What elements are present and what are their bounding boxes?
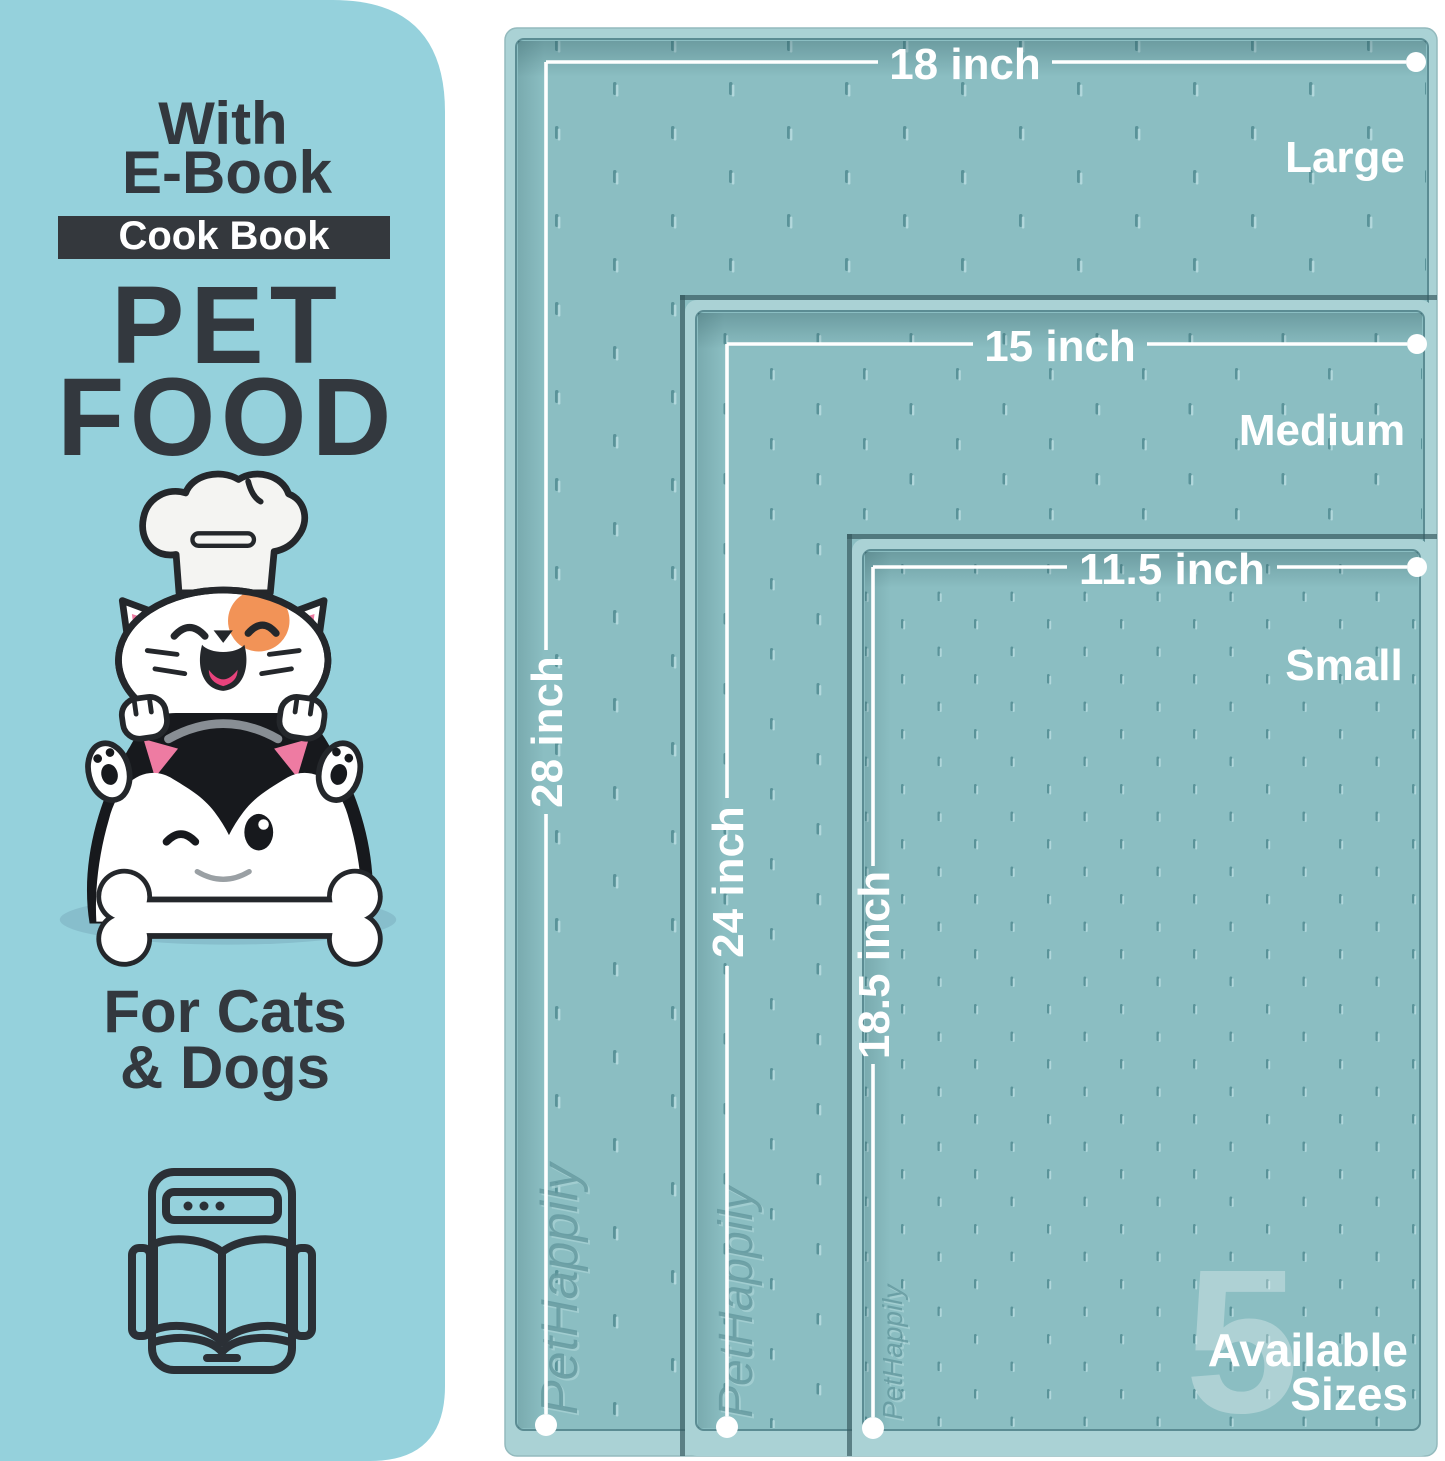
svg-text:PetHappily: PetHappily bbox=[531, 1161, 589, 1415]
svg-text:FOOD: FOOD bbox=[57, 356, 397, 479]
svg-text:Small: Small bbox=[1285, 641, 1402, 690]
svg-text:PetHappily: PetHappily bbox=[710, 1183, 763, 1418]
svg-text:Medium: Medium bbox=[1239, 406, 1405, 455]
svg-text:18 inch: 18 inch bbox=[889, 40, 1041, 89]
svg-text:18.5 inch: 18.5 inch bbox=[850, 871, 899, 1059]
svg-text:28 inch: 28 inch bbox=[523, 656, 572, 808]
svg-text:15 inch: 15 inch bbox=[984, 322, 1136, 371]
svg-text:24 inch: 24 inch bbox=[704, 806, 753, 958]
svg-text:& Dogs: & Dogs bbox=[120, 1034, 330, 1101]
svg-text:Large: Large bbox=[1285, 133, 1405, 182]
svg-text:Sizes: Sizes bbox=[1290, 1368, 1408, 1420]
svg-text:PetHappily: PetHappily bbox=[877, 1283, 908, 1420]
svg-text:11.5 inch: 11.5 inch bbox=[1079, 545, 1265, 594]
svg-text:Cook Book: Cook Book bbox=[118, 214, 330, 258]
svg-text:E-Book: E-Book bbox=[122, 139, 333, 206]
